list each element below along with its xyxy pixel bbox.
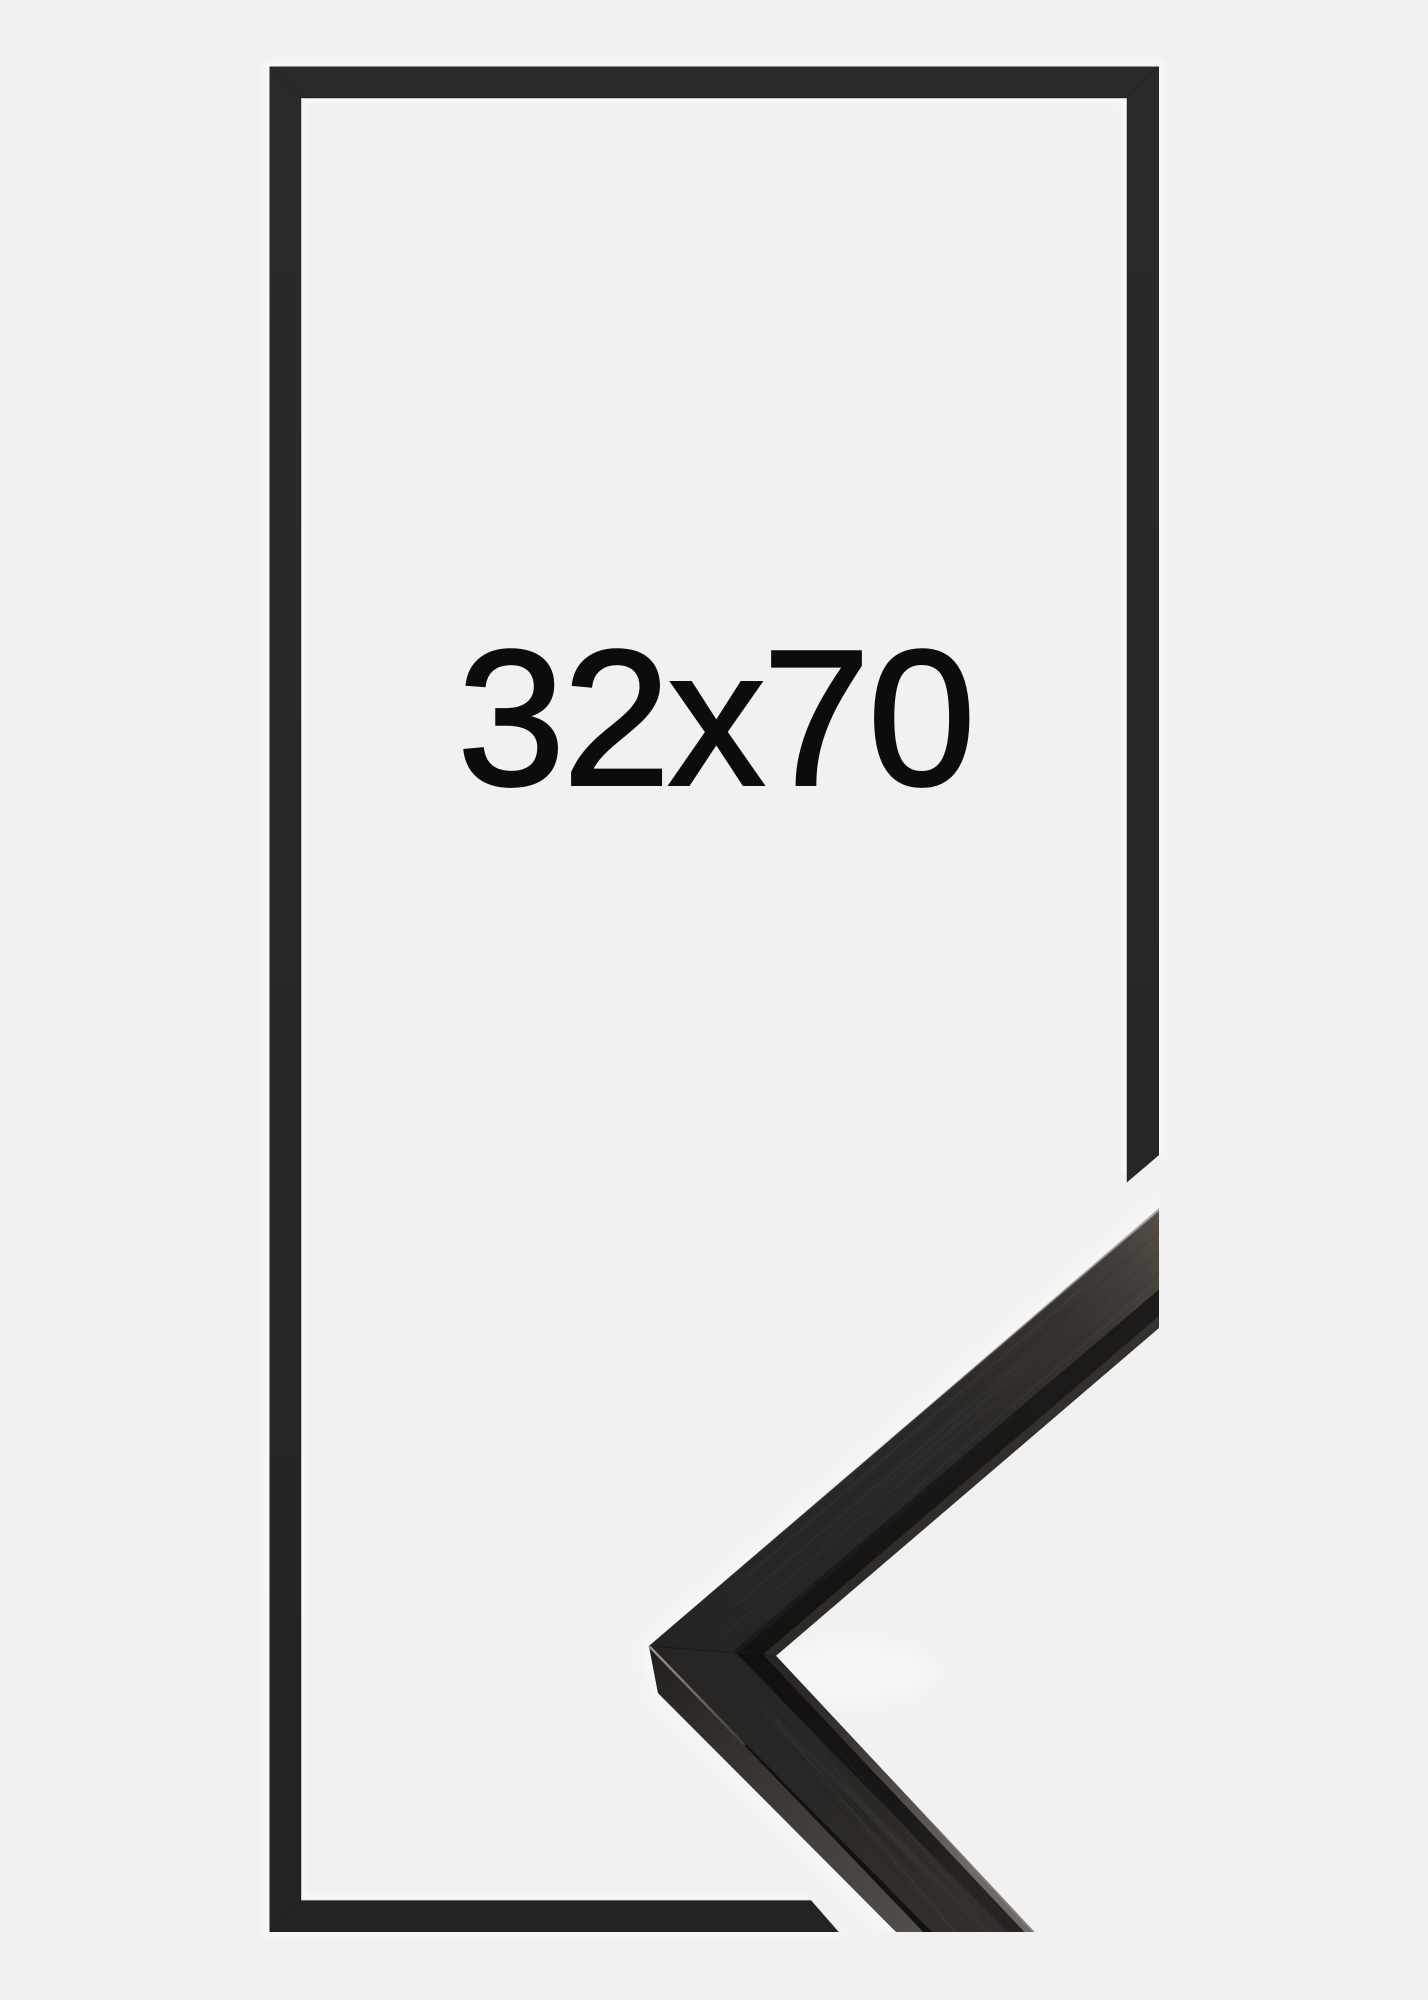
svg-text:32x70: 32x70 (458, 610, 974, 826)
